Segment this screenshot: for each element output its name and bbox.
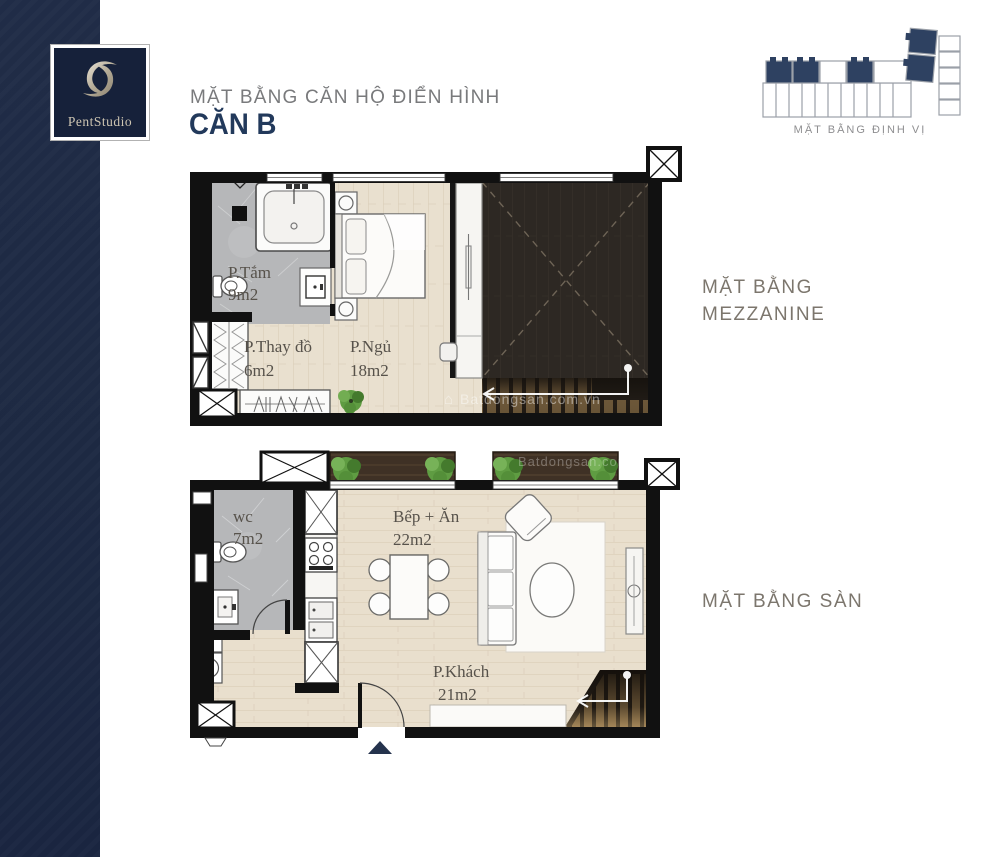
page-title: MẶT BẰNG CĂN HỘ ĐIỂN HÌNH [190,87,500,109]
bathtub [256,183,332,251]
washbasin [212,590,238,624]
bed [335,214,425,298]
swan-monogram-icon [77,57,123,101]
dressing-wardrobe [210,316,248,390]
brand-wordmark: PentStudio [68,114,132,130]
room-label-dressing: P.Thay đồ [244,337,312,356]
void-double-height [482,182,650,378]
floorplan-poster: PentStudio MẶT BẰNG CĂN HỘ ĐIỂN HÌNH CĂN… [0,0,1000,857]
column-x-box-ground [646,460,678,488]
coffee-table [530,563,574,617]
wardrobe-cabinet [456,183,482,378]
tv-cabinet [626,548,643,634]
shaft-x-box [198,390,236,417]
stool [440,343,457,361]
kitchen-strip [305,490,338,683]
room-area-living: 21m2 [438,685,477,704]
locator-diagram [758,26,962,124]
windows [267,174,613,182]
ground-section-label: MẶT BẰNG SÀN [702,588,863,615]
room-area-bedroom: 18m2 [350,361,389,380]
watermark-top: Batdongsan.com.vn [518,454,650,469]
ground-plan: Batdongsan.com.vn [188,446,688,758]
column-x-box [648,148,680,180]
shaft-x-box-ground [261,452,328,483]
room-area-bath: 9m2 [228,285,258,304]
watermark: ⌂ Batdongsan.com.vn [444,391,601,408]
room-area-dressing: 6m2 [244,361,274,380]
room-label-living: P.Khách [433,662,490,681]
lower-wardrobe [240,390,330,417]
entrance-arrow [368,741,392,754]
mezzanine-plan: ⌂ Batdongsan.com.vn [188,146,684,430]
room-area-kitchen: 22m2 [393,530,432,549]
vanity-sink [300,268,331,306]
room-label-bedroom: P.Ngủ [350,337,392,356]
unit-title: CĂN B [189,108,276,142]
room-label-bath: P.Tắm [228,263,271,282]
room-label-wc: wc [233,507,253,526]
room-label-kitchen: Bếp + Ăn [393,507,460,526]
brand-logo: PentStudio [50,44,150,141]
sofa [478,532,516,645]
shower-drain [232,206,247,221]
svg-text:Batdongsan.com.vn: Batdongsan.com.vn [460,391,601,407]
locator-caption: MẶT BẰNG ĐỊNH VỊ [758,124,962,136]
mezzanine-section-label: MẶT BẰNG MEZZANINE [702,274,825,328]
console-cabinet [430,705,566,727]
room-area-wc: 7m2 [233,529,263,548]
brand-logo-panel: PentStudio [54,48,146,137]
svg-text:⌂: ⌂ [444,391,453,408]
shaft-x-box-bottom [197,702,234,746]
